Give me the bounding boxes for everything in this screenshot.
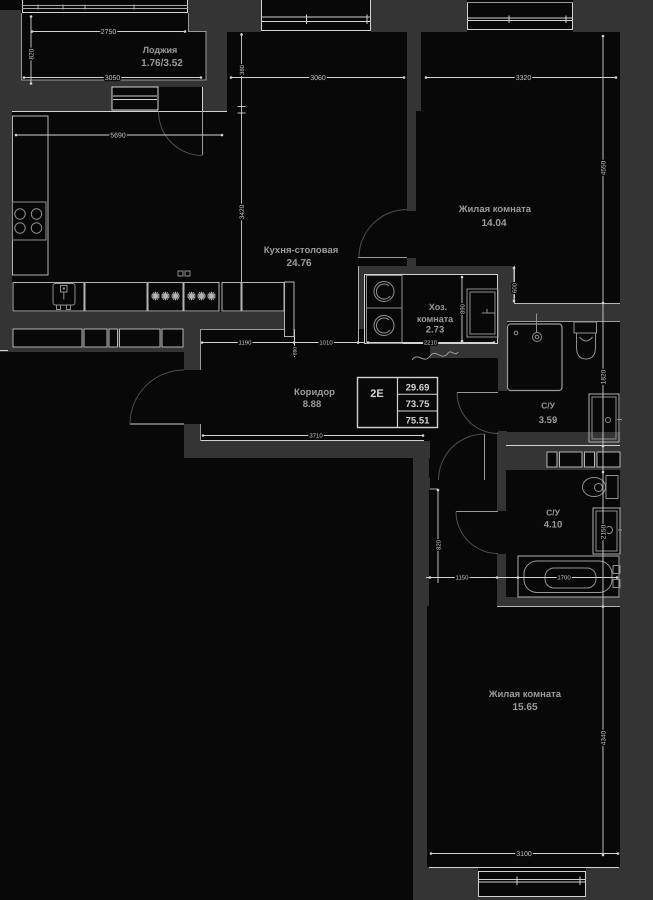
- svg-text:820: 820: [435, 539, 442, 550]
- svg-text:Кухня-столовая: Кухня-столовая: [264, 245, 339, 256]
- svg-text:1820: 1820: [600, 369, 607, 384]
- svg-text:3060: 3060: [310, 75, 326, 82]
- svg-text:1150: 1150: [456, 575, 470, 582]
- svg-text:5690: 5690: [110, 132, 126, 139]
- svg-text:2750: 2750: [101, 29, 117, 36]
- svg-text:820: 820: [28, 48, 35, 59]
- svg-text:75.51: 75.51: [406, 416, 430, 427]
- svg-text:24.76: 24.76: [286, 258, 311, 269]
- svg-text:С/У: С/У: [546, 508, 561, 518]
- svg-text:2150: 2150: [600, 524, 607, 539]
- svg-text:15.65: 15.65: [512, 702, 537, 713]
- svg-text:380: 380: [239, 64, 246, 75]
- svg-text:3100: 3100: [516, 851, 532, 858]
- svg-text:8.88: 8.88: [303, 399, 322, 410]
- svg-text:1010: 1010: [319, 340, 333, 347]
- svg-text:14.04: 14.04: [481, 218, 506, 229]
- svg-text:3050: 3050: [105, 75, 121, 82]
- svg-text:4550: 4550: [600, 160, 607, 175]
- svg-text:3320: 3320: [516, 75, 532, 82]
- svg-text:1700: 1700: [557, 575, 571, 582]
- svg-text:Хоз.: Хоз.: [429, 302, 447, 312]
- svg-text:комната: комната: [417, 314, 454, 324]
- svg-text:Коридор: Коридор: [294, 387, 335, 398]
- svg-text:Лоджия: Лоджия: [143, 45, 178, 55]
- svg-text:2.73: 2.73: [426, 325, 445, 336]
- svg-text:3420: 3420: [239, 204, 246, 219]
- svg-text:Жилая комната: Жилая комната: [488, 689, 562, 700]
- svg-text:600: 600: [511, 282, 518, 293]
- svg-text:4340: 4340: [600, 730, 607, 745]
- svg-text:2210: 2210: [424, 340, 438, 347]
- svg-text:29.69: 29.69: [406, 383, 430, 394]
- svg-text:1.76/3.52: 1.76/3.52: [141, 58, 183, 69]
- svg-text:890: 890: [459, 303, 466, 314]
- svg-text:73.75: 73.75: [406, 399, 430, 410]
- svg-text:3710: 3710: [309, 433, 323, 440]
- svg-text:890: 890: [293, 347, 299, 356]
- svg-text:2Е: 2Е: [370, 388, 383, 400]
- svg-text:Жилая комната: Жилая комната: [458, 204, 532, 215]
- svg-text:3.59: 3.59: [539, 415, 558, 426]
- svg-text:4.10: 4.10: [544, 520, 563, 531]
- svg-text:С/У: С/У: [541, 401, 556, 411]
- svg-text:1190: 1190: [239, 340, 253, 347]
